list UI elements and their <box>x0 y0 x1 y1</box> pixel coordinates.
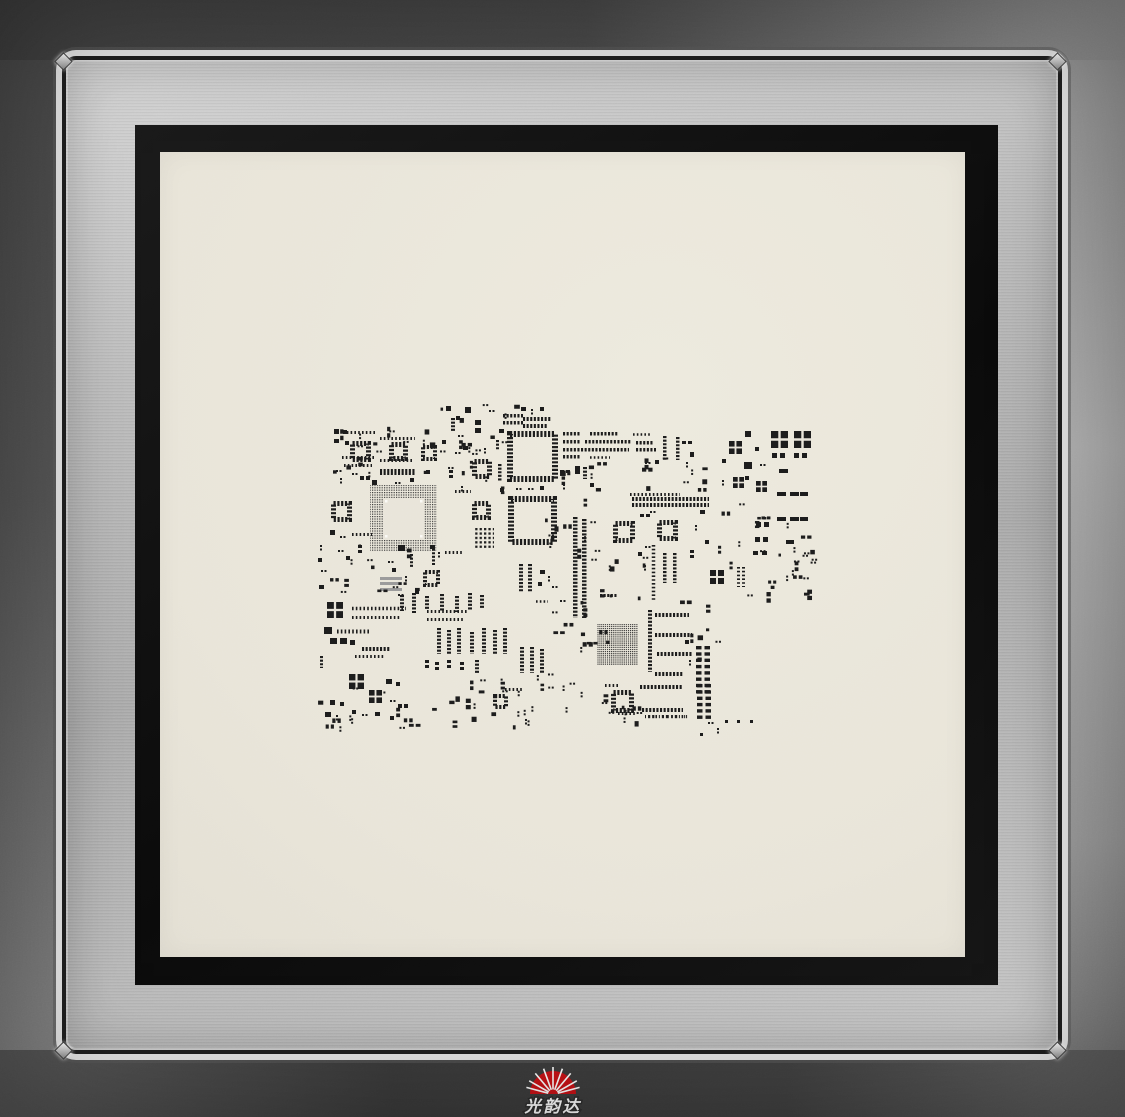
stencil-frame-photo: 光韵达 <box>0 0 1125 1117</box>
outer-frame-left <box>0 0 66 1117</box>
logo-text: 光韵达 <box>524 1097 582 1115</box>
sun-rays-icon <box>526 1067 579 1093</box>
outer-frame-top <box>0 0 1125 60</box>
logo-graphic: 光韵达 <box>490 1063 630 1115</box>
stencil-foil <box>160 152 965 957</box>
outer-frame-right <box>1058 0 1125 1117</box>
aperture-pattern <box>160 152 965 957</box>
brand-logo: 光韵达 <box>490 1063 630 1115</box>
